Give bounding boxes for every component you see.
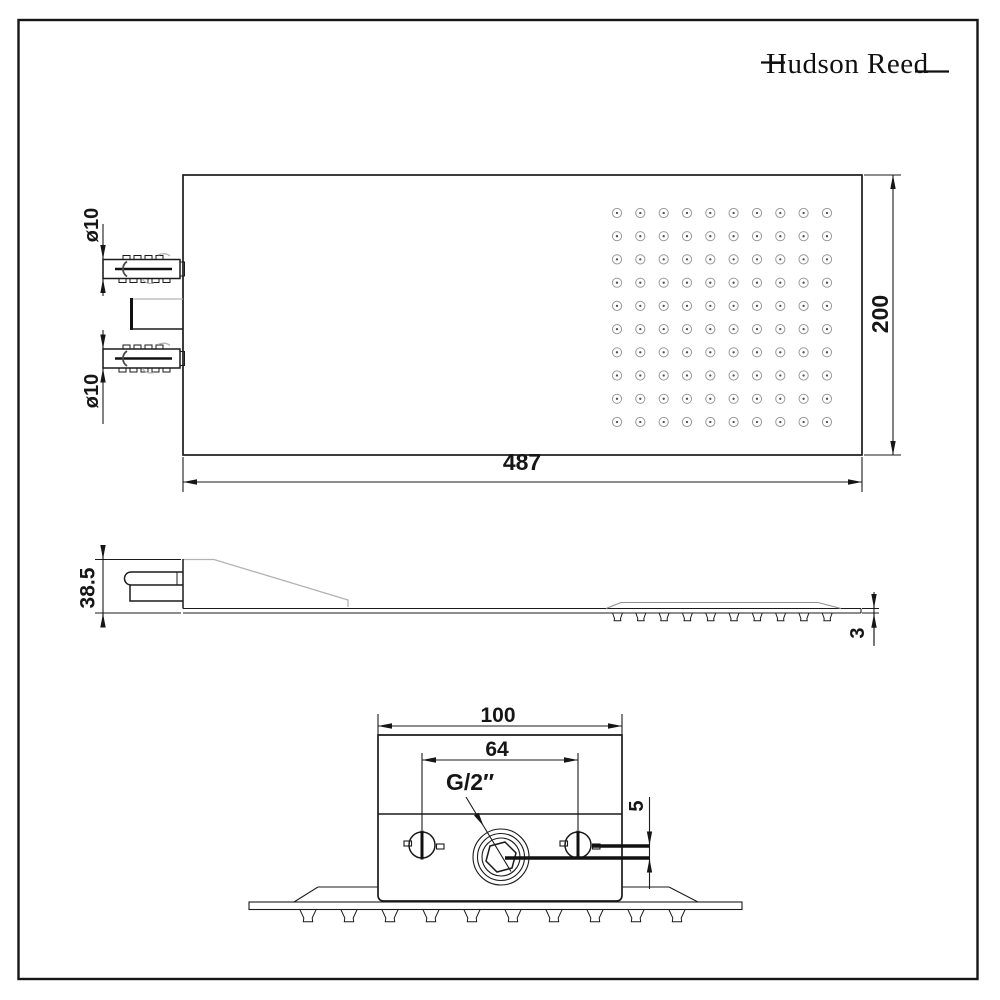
dim-label-200: 200 — [867, 295, 893, 333]
nozzle-center — [779, 398, 781, 400]
nozzle-center — [732, 328, 734, 330]
top-view: ø10 ø10 200 487 — [81, 175, 901, 492]
dim-label-5: 5 — [626, 800, 648, 811]
nozzle-center — [732, 235, 734, 237]
nozzle-center — [756, 328, 758, 330]
nozzle-profile — [682, 613, 692, 621]
nozzle-center — [663, 398, 665, 400]
dim-label-thread: G/2″ — [446, 769, 494, 795]
nozzle-center — [639, 421, 641, 423]
end-view: G/2″ 100 64 5 — [249, 704, 742, 922]
nozzle-profile — [799, 613, 809, 621]
inlet-connector-top — [103, 254, 185, 284]
inlet-pipe-profile — [125, 572, 184, 601]
nozzle-center — [616, 305, 618, 307]
nozzle-profile — [613, 613, 623, 621]
nozzle-center — [686, 374, 688, 376]
nozzle-center — [732, 305, 734, 307]
nozzle-center — [686, 282, 688, 284]
nozzle-center — [826, 328, 828, 330]
face-plate-profile — [183, 609, 861, 614]
nozzle-center — [616, 235, 618, 237]
dim-label-487: 487 — [503, 449, 541, 475]
nozzle-center — [663, 282, 665, 284]
nozzle-center — [616, 398, 618, 400]
nozzle-center — [732, 374, 734, 376]
nozzle-center — [709, 328, 711, 330]
nozzle-center — [639, 235, 641, 237]
nozzle-center — [756, 421, 758, 423]
nozzle-center — [639, 374, 641, 376]
nozzle-profile — [822, 613, 832, 621]
dim-height-38-5: 38.5 — [76, 545, 181, 627]
nozzle-center — [802, 351, 804, 353]
side-view: 38.5 3 — [76, 545, 879, 646]
nozzle-center — [779, 328, 781, 330]
nozzle-center — [686, 421, 688, 423]
side-nozzle-row — [613, 613, 833, 621]
nozzle-center — [709, 258, 711, 260]
nozzle-center — [826, 305, 828, 307]
nozzle-center — [616, 374, 618, 376]
nozzle-profile — [341, 910, 357, 922]
nozzle-profile — [628, 910, 644, 922]
nozzle-center — [639, 305, 641, 307]
nozzle-center — [826, 374, 828, 376]
left-screw — [404, 831, 444, 860]
nozzle-center — [802, 328, 804, 330]
nozzle-center — [663, 328, 665, 330]
dim-label-64: 64 — [485, 738, 509, 761]
nozzle-center — [709, 282, 711, 284]
nozzle-center — [756, 212, 758, 214]
nozzle-center — [686, 212, 688, 214]
nozzle-center — [709, 212, 711, 214]
nozzle-center — [756, 305, 758, 307]
body-taper-edge — [183, 560, 348, 608]
face-plate-end — [249, 887, 742, 910]
nozzle-center — [779, 235, 781, 237]
mount-notch — [131, 298, 183, 330]
nozzle-center — [686, 305, 688, 307]
nozzle-center — [663, 421, 665, 423]
nozzle-center — [732, 258, 734, 260]
nozzle-center — [802, 258, 804, 260]
nozzle-profile — [546, 910, 562, 922]
dim-thickness-3: 3 — [847, 592, 879, 646]
drawing-page: Hudson Reed ø10 ø10 — [0, 0, 1000, 1000]
nozzle-center — [709, 374, 711, 376]
nozzle-profile — [752, 613, 762, 621]
nozzle-center — [826, 398, 828, 400]
dim-label-dia10-bottom: ø10 — [81, 374, 103, 408]
nozzle-center — [639, 351, 641, 353]
nozzle-center — [686, 328, 688, 330]
technical-drawing: Hudson Reed ø10 ø10 — [0, 0, 1000, 1000]
nozzle-center — [802, 212, 804, 214]
nozzle-center — [756, 282, 758, 284]
dim-inlet-bottom: ø10 — [81, 330, 103, 424]
nozzle-center — [616, 212, 618, 214]
nozzle-center — [709, 351, 711, 353]
nozzle-center — [779, 374, 781, 376]
nozzle-center — [639, 328, 641, 330]
nozzle-panel-profile — [606, 603, 841, 609]
nozzle-center — [826, 282, 828, 284]
nozzle-center — [756, 374, 758, 376]
nozzle-center — [732, 351, 734, 353]
dim-inlet-top: ø10 — [81, 208, 103, 296]
nozzle-center — [779, 351, 781, 353]
nozzle-center — [779, 421, 781, 423]
nozzle-profile — [587, 910, 603, 922]
dim-label-3: 3 — [847, 627, 869, 638]
nozzle-profile — [505, 910, 521, 922]
nozzle-profile — [776, 613, 786, 621]
nozzle-center — [779, 282, 781, 284]
nozzle-center — [709, 305, 711, 307]
nozzle-profile — [382, 910, 398, 922]
nozzle-center — [663, 212, 665, 214]
nozzle-center — [663, 235, 665, 237]
nozzle-profile — [659, 613, 669, 621]
nozzle-center — [616, 282, 618, 284]
nozzle-center — [802, 282, 804, 284]
end-nozzle-row — [300, 910, 685, 922]
nozzle-center — [826, 421, 828, 423]
nozzle-center — [756, 235, 758, 237]
dim-label-dia10-top: ø10 — [81, 208, 103, 242]
logo-text: Hudson Reed — [766, 48, 929, 80]
nozzle-center — [639, 398, 641, 400]
nozzle-center — [709, 421, 711, 423]
nozzle-center — [732, 421, 734, 423]
nozzle-center — [616, 328, 618, 330]
nozzle-center — [686, 258, 688, 260]
nozzle-center — [732, 212, 734, 214]
nozzle-center — [616, 258, 618, 260]
nozzle-grid — [612, 208, 831, 426]
nozzle-center — [779, 305, 781, 307]
nozzle-center — [802, 374, 804, 376]
nozzle-center — [732, 398, 734, 400]
nozzle-center — [686, 235, 688, 237]
nozzle-center — [756, 258, 758, 260]
nozzle-profile — [669, 910, 685, 922]
nozzle-center — [802, 235, 804, 237]
dim-label-38-5: 38.5 — [76, 567, 99, 608]
nozzle-profile — [706, 613, 716, 621]
dim-offset-5: 5 — [626, 797, 650, 889]
nozzle-center — [709, 398, 711, 400]
nozzle-center — [826, 258, 828, 260]
nozzle-center — [802, 305, 804, 307]
nozzle-center — [756, 398, 758, 400]
dim-label-100: 100 — [480, 704, 515, 727]
nozzle-center — [732, 282, 734, 284]
nozzle-center — [779, 258, 781, 260]
nozzle-center — [663, 258, 665, 260]
nozzle-center — [616, 351, 618, 353]
nozzle-profile — [300, 910, 316, 922]
nozzle-center — [779, 212, 781, 214]
nozzle-profile — [464, 910, 480, 922]
nozzle-center — [686, 398, 688, 400]
nozzle-center — [663, 374, 665, 376]
nozzle-center — [826, 351, 828, 353]
nozzle-profile — [729, 613, 739, 621]
nozzle-center — [826, 235, 828, 237]
nozzle-center — [639, 282, 641, 284]
dim-body-100: 100 — [378, 704, 622, 735]
nozzle-center — [663, 351, 665, 353]
nozzle-center — [639, 258, 641, 260]
nozzle-center — [756, 351, 758, 353]
nozzle-center — [663, 305, 665, 307]
nozzle-profile — [423, 910, 439, 922]
brand-logo: Hudson Reed — [761, 48, 949, 80]
dim-height-200: 200 — [864, 175, 901, 455]
nozzle-center — [639, 212, 641, 214]
nozzle-center — [826, 212, 828, 214]
page-border — [19, 20, 978, 979]
nozzle-center — [802, 421, 804, 423]
nozzle-center — [802, 398, 804, 400]
nozzle-profile — [636, 613, 646, 621]
thread-callout: G/2″ — [446, 769, 511, 872]
nozzle-center — [709, 235, 711, 237]
nozzle-center — [616, 421, 618, 423]
inlet-connector-bottom — [103, 343, 185, 373]
nozzle-center — [686, 351, 688, 353]
